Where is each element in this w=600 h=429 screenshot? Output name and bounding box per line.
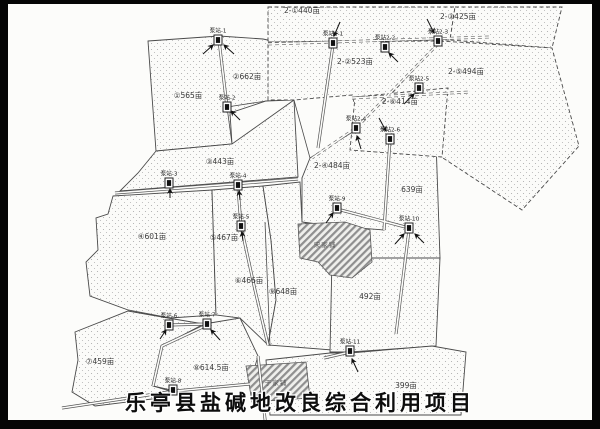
map-figure: ①565亩 ②662亩 ③443亩 ④601亩 ⑤467亩 ⑥466亩 ⑦459… — [0, 0, 600, 429]
parcel-1-label: ①565亩 — [174, 90, 203, 100]
pump-icon — [329, 38, 337, 48]
pump-icon — [434, 36, 442, 46]
parcel-4-label: ④601亩 — [138, 231, 167, 241]
pump-label: 泵站-2 — [219, 94, 236, 102]
parcel-3-label: ③443亩 — [206, 156, 235, 166]
parcel-8-label: ⑧614.5亩 — [193, 362, 229, 372]
map-title: 乐亭县盐碱地改良综合利用项目 — [125, 391, 475, 415]
pump-label: 泵站2-4 — [346, 115, 367, 123]
pump-icon — [165, 178, 173, 188]
parcel-639-label: 639亩 — [401, 184, 423, 194]
pump-label: 泵站-5 — [233, 213, 250, 221]
parcel-2-6-label: 2-⑥414亩 — [382, 96, 419, 106]
parcel-7-label: ⑦459亩 — [86, 356, 115, 366]
pump-label: 泵站-6 — [161, 312, 178, 320]
pump-label: 泵站-11 — [340, 338, 361, 346]
pump-icon — [415, 83, 423, 93]
pump-label: 泵站2-3 — [428, 28, 449, 36]
pump-icon — [405, 223, 413, 233]
parcel-2-5-label: 2-⑤494亩 — [448, 66, 485, 76]
parcel-492-label: 492亩 — [359, 291, 381, 301]
pump-icon — [386, 134, 394, 144]
pump-label: 泵站-9 — [329, 195, 346, 203]
parcel-6-label: ⑥466亩 — [235, 275, 264, 285]
pump-label: 泵站-3 — [161, 170, 178, 178]
pump-label: 泵站2-2 — [375, 34, 395, 42]
parcel-2-3-label: 2-③425亩 — [440, 11, 477, 21]
pump-icon — [223, 102, 231, 112]
pump-icon — [346, 346, 354, 356]
pump-label: 泵站-10 — [399, 215, 420, 223]
pump-label: 泵站2-5 — [409, 75, 430, 83]
parcel-2-2-label: 2-②523亩 — [337, 56, 374, 66]
village-2-label: 于家铺 — [265, 378, 288, 387]
pump-icon — [214, 35, 222, 45]
pump-label: 泵站2-6 — [380, 126, 401, 134]
pump-icon — [165, 320, 173, 330]
pump-icon — [203, 319, 211, 329]
village-1-label: 宋家铺 — [314, 240, 337, 249]
pump-label: 泵站2-1 — [323, 30, 344, 38]
parcel-399-label: 399亩 — [395, 380, 417, 390]
parcel-2-label: ②662亩 — [233, 71, 262, 81]
pump-icon — [352, 123, 360, 133]
pump-icon — [381, 42, 389, 52]
pump-icon — [333, 203, 341, 213]
parcel-2-4-label: 2-④484亩 — [314, 160, 351, 170]
pump-label: 泵站-7 — [199, 311, 216, 319]
parcel-5-label: ⑤467亩 — [210, 232, 239, 242]
pump-label: 泵站-4 — [230, 172, 247, 180]
parcel-2-1-label: 2-①440亩 — [284, 5, 321, 15]
pump-label: 泵站-1 — [210, 27, 227, 35]
pump-icon — [237, 221, 245, 231]
land-parcel-map: ①565亩 ②662亩 ③443亩 ④601亩 ⑤467亩 ⑥466亩 ⑦459… — [0, 0, 600, 429]
pump-icon — [234, 180, 242, 190]
parcel-9-label: ⑨648亩 — [269, 286, 298, 296]
pump-label: 泵站-8 — [165, 377, 182, 385]
